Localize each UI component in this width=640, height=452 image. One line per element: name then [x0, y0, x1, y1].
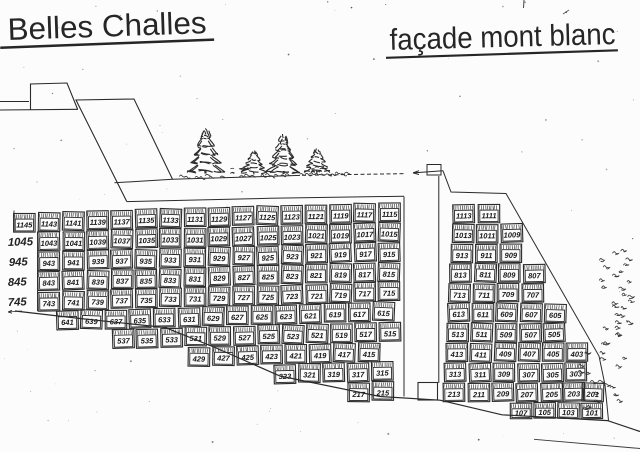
- svg-text:625: 625: [256, 313, 269, 322]
- svg-text:945: 945: [9, 256, 29, 269]
- svg-text:209: 209: [496, 389, 511, 398]
- svg-text:609: 609: [500, 310, 514, 320]
- svg-text:213: 213: [447, 390, 461, 399]
- svg-text:941: 941: [67, 258, 80, 267]
- svg-text:743: 743: [43, 299, 56, 308]
- svg-text:717: 717: [358, 289, 371, 298]
- svg-text:203: 203: [566, 389, 581, 398]
- svg-text:741: 741: [67, 298, 80, 307]
- svg-text:831: 831: [189, 275, 202, 284]
- svg-text:713: 713: [453, 291, 467, 300]
- svg-text:833: 833: [164, 276, 178, 286]
- svg-text:1143: 1143: [41, 219, 58, 228]
- svg-text:823: 823: [286, 272, 300, 281]
- svg-text:715: 715: [383, 289, 396, 298]
- svg-text:935: 935: [139, 257, 153, 266]
- svg-text:511: 511: [475, 330, 487, 339]
- svg-text:721: 721: [310, 292, 323, 301]
- svg-text:319: 319: [327, 370, 341, 379]
- svg-text:1127: 1127: [235, 213, 252, 222]
- svg-text:633: 633: [158, 315, 171, 324]
- svg-text:919: 919: [334, 250, 348, 260]
- svg-text:211: 211: [472, 390, 485, 399]
- svg-text:641: 641: [61, 318, 74, 327]
- svg-text:925: 925: [261, 253, 275, 263]
- svg-text:423: 423: [264, 352, 278, 361]
- svg-text:711: 711: [478, 291, 490, 300]
- svg-text:817: 817: [358, 270, 372, 279]
- svg-text:311: 311: [474, 370, 486, 379]
- svg-text:1137: 1137: [113, 217, 130, 226]
- svg-text:613: 613: [452, 310, 466, 320]
- svg-text:1009: 1009: [503, 230, 521, 240]
- svg-text:519: 519: [335, 331, 348, 340]
- svg-text:1027: 1027: [235, 234, 253, 244]
- svg-text:737: 737: [115, 296, 129, 305]
- svg-text:515: 515: [384, 329, 397, 338]
- svg-text:427: 427: [216, 354, 230, 363]
- svg-text:837: 837: [116, 277, 129, 286]
- svg-text:719: 719: [334, 291, 348, 301]
- svg-text:825: 825: [262, 272, 275, 281]
- svg-text:943: 943: [43, 259, 56, 268]
- svg-text:313: 313: [449, 370, 463, 379]
- svg-text:745: 745: [8, 296, 28, 309]
- svg-text:1125: 1125: [259, 213, 276, 223]
- svg-text:1015: 1015: [381, 229, 399, 239]
- svg-text:309: 309: [498, 370, 511, 379]
- svg-text:517: 517: [359, 330, 372, 339]
- svg-text:809: 809: [503, 271, 516, 280]
- svg-text:425: 425: [240, 353, 255, 362]
- svg-text:105: 105: [538, 408, 551, 417]
- svg-text:909: 909: [505, 251, 518, 260]
- svg-text:619: 619: [329, 310, 342, 319]
- svg-text:1029: 1029: [210, 234, 228, 243]
- svg-text:807: 807: [528, 271, 542, 280]
- svg-text:933: 933: [164, 256, 178, 265]
- svg-text:1141: 1141: [65, 218, 81, 227]
- svg-text:1121: 1121: [308, 212, 324, 221]
- svg-text:839: 839: [92, 278, 106, 287]
- svg-text:929: 929: [213, 254, 227, 264]
- svg-text:505: 505: [548, 330, 562, 340]
- svg-text:527: 527: [238, 333, 252, 342]
- svg-text:917: 917: [359, 249, 373, 259]
- svg-text:1033: 1033: [162, 235, 180, 244]
- svg-text:205: 205: [544, 390, 559, 400]
- svg-text:103: 103: [562, 408, 576, 417]
- svg-text:733: 733: [164, 295, 178, 304]
- svg-text:731: 731: [189, 295, 202, 304]
- svg-text:509: 509: [500, 330, 513, 339]
- svg-text:1043: 1043: [41, 239, 59, 248]
- svg-text:915: 915: [383, 250, 397, 259]
- svg-text:629: 629: [207, 314, 221, 323]
- svg-text:631: 631: [183, 315, 196, 324]
- svg-text:533: 533: [165, 335, 178, 344]
- svg-text:507: 507: [524, 330, 538, 339]
- svg-text:1123: 1123: [284, 212, 301, 221]
- svg-text:1117: 1117: [357, 210, 374, 219]
- svg-text:537: 537: [117, 336, 131, 345]
- svg-text:927: 927: [238, 253, 251, 262]
- svg-text:617: 617: [353, 310, 366, 319]
- svg-text:421: 421: [289, 351, 303, 360]
- svg-text:1131: 1131: [187, 215, 203, 224]
- svg-text:739: 739: [91, 298, 105, 307]
- svg-text:911: 911: [480, 251, 492, 260]
- svg-text:411: 411: [474, 350, 487, 359]
- svg-text:611: 611: [477, 310, 489, 319]
- svg-text:615: 615: [377, 309, 391, 319]
- svg-text:1013: 1013: [455, 231, 473, 240]
- svg-text:939: 939: [92, 257, 106, 266]
- svg-text:207: 207: [519, 390, 534, 399]
- svg-text:623: 623: [280, 312, 294, 321]
- svg-text:735: 735: [140, 296, 153, 305]
- svg-text:415: 415: [362, 350, 377, 359]
- svg-text:1115: 1115: [382, 210, 398, 219]
- svg-text:725: 725: [262, 293, 276, 302]
- svg-text:621: 621: [304, 311, 317, 320]
- svg-text:843: 843: [42, 278, 56, 287]
- svg-text:1119: 1119: [333, 211, 350, 220]
- svg-text:723: 723: [286, 292, 300, 301]
- svg-text:1017: 1017: [356, 230, 374, 240]
- svg-text:835: 835: [140, 277, 154, 286]
- svg-text:923: 923: [286, 252, 300, 262]
- svg-text:1041: 1041: [65, 239, 82, 248]
- svg-text:931: 931: [188, 255, 201, 264]
- svg-text:1129: 1129: [211, 214, 228, 223]
- svg-text:727: 727: [237, 293, 250, 302]
- svg-text:1133: 1133: [162, 215, 179, 225]
- svg-text:523: 523: [287, 332, 301, 342]
- svg-text:1025: 1025: [260, 233, 278, 242]
- svg-text:1145: 1145: [16, 220, 33, 229]
- svg-text:535: 535: [141, 336, 155, 345]
- svg-text:1021: 1021: [308, 231, 325, 240]
- svg-text:403: 403: [570, 350, 584, 359]
- svg-text:413: 413: [450, 350, 464, 359]
- svg-text:429: 429: [192, 354, 206, 363]
- svg-text:1111: 1111: [481, 211, 496, 220]
- svg-text:921: 921: [310, 251, 323, 260]
- svg-text:1039: 1039: [89, 237, 107, 246]
- svg-text:405: 405: [546, 350, 560, 359]
- svg-text:827: 827: [238, 273, 252, 282]
- svg-text:819: 819: [334, 270, 348, 279]
- svg-text:1045: 1045: [8, 236, 34, 249]
- svg-text:417: 417: [337, 350, 352, 360]
- svg-text:729: 729: [213, 294, 227, 303]
- svg-text:409: 409: [498, 349, 513, 359]
- svg-text:307: 307: [522, 370, 536, 379]
- svg-text:1035: 1035: [138, 236, 156, 245]
- svg-text:841: 841: [67, 278, 80, 287]
- svg-text:1011: 1011: [479, 231, 495, 240]
- svg-text:605: 605: [549, 311, 563, 320]
- svg-text:709: 709: [502, 290, 515, 299]
- svg-text:1023: 1023: [284, 233, 302, 242]
- svg-text:1037: 1037: [113, 236, 131, 245]
- svg-text:937: 937: [115, 256, 129, 265]
- svg-text:627: 627: [231, 313, 244, 322]
- svg-text:407: 407: [522, 349, 537, 358]
- svg-text:1019: 1019: [332, 231, 350, 240]
- svg-text:1031: 1031: [187, 236, 204, 245]
- svg-text:1135: 1135: [138, 216, 155, 225]
- svg-text:821: 821: [310, 271, 323, 280]
- svg-text:525: 525: [262, 332, 276, 341]
- svg-text:813: 813: [454, 271, 467, 280]
- svg-text:305: 305: [546, 370, 560, 379]
- svg-text:815: 815: [382, 270, 396, 279]
- svg-text:321: 321: [303, 370, 316, 379]
- svg-text:811: 811: [479, 270, 491, 279]
- svg-text:315: 315: [376, 368, 389, 377]
- svg-text:529: 529: [213, 334, 226, 343]
- svg-text:1139: 1139: [90, 218, 107, 227]
- svg-text:913: 913: [456, 251, 469, 260]
- svg-text:607: 607: [525, 310, 539, 319]
- svg-text:513: 513: [451, 330, 464, 339]
- svg-text:829: 829: [213, 274, 227, 283]
- svg-text:521: 521: [311, 331, 324, 340]
- svg-text:639: 639: [85, 317, 99, 326]
- svg-text:707: 707: [527, 291, 540, 300]
- svg-text:317: 317: [352, 370, 366, 379]
- svg-text:419: 419: [313, 351, 328, 360]
- svg-text:1113: 1113: [456, 211, 473, 220]
- svg-text:845: 845: [8, 276, 28, 289]
